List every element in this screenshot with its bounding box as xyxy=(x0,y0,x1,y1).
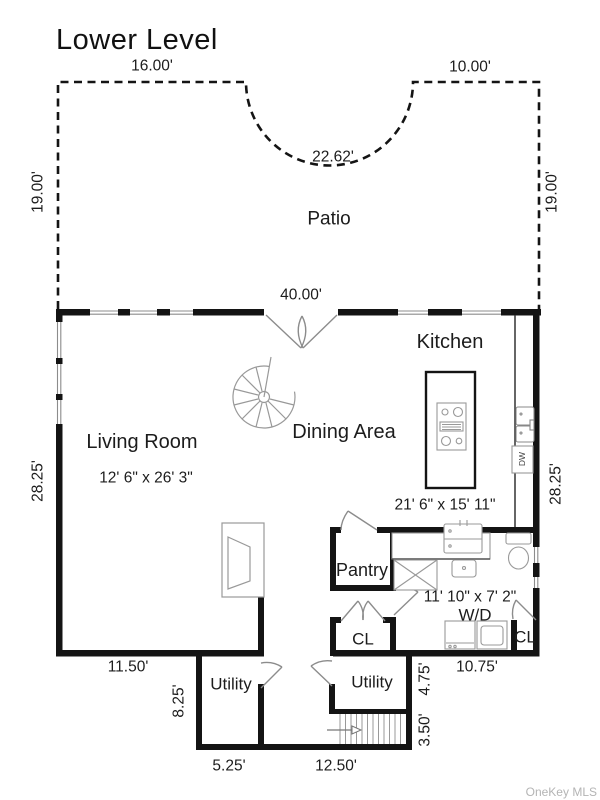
patio-door-left-leaf xyxy=(266,315,301,348)
living-room-size: 12' 6" x 26' 3" xyxy=(99,470,193,486)
small-sink xyxy=(452,560,476,577)
floor-plan-drawing xyxy=(0,0,600,800)
closet-left-door-a xyxy=(341,601,363,621)
dim-utility-center-height: 4.75' xyxy=(417,662,433,695)
staircase xyxy=(327,714,401,744)
laundry-sink xyxy=(444,520,482,553)
patio-door-right-leaf xyxy=(303,315,337,348)
room-label-pantry: Pantry xyxy=(336,561,388,579)
utility-left-door xyxy=(261,662,282,688)
spiral-staircase xyxy=(233,357,295,428)
bath-fixtures xyxy=(392,520,531,649)
room-label-closet-right: CL xyxy=(514,629,536,646)
dishwasher-label: DW xyxy=(518,452,527,466)
room-label-kitchen: Kitchen xyxy=(417,332,484,352)
dim-laundry-bottom-width: 10.75' xyxy=(456,659,498,675)
kitchen-sink xyxy=(516,407,534,442)
dim-main-height-right: 28.25' xyxy=(548,463,564,505)
room-label-utility-left: Utility xyxy=(210,676,252,693)
patio-outline xyxy=(58,82,539,309)
dryer xyxy=(477,621,507,649)
bath-door xyxy=(394,588,418,615)
dim-main-height-left: 28.25' xyxy=(30,460,46,502)
laundry-bath-size: 11' 10" x 7' 2" xyxy=(424,589,516,605)
pantry-door xyxy=(341,511,377,530)
range-stove xyxy=(437,403,466,450)
closet-left-door-b xyxy=(363,601,385,621)
room-label-closet-left: CL xyxy=(352,631,374,648)
floor-plan: Lower Level OneKey MLS Patio Kitchen Liv… xyxy=(0,0,600,800)
room-label-dining-area: Dining Area xyxy=(292,422,395,442)
watermark: OneKey MLS xyxy=(526,785,597,799)
dim-utility-left-width: 5.25' xyxy=(212,758,245,774)
room-label-utility-center: Utility xyxy=(351,674,393,691)
toilet xyxy=(506,533,531,569)
room-label-patio: Patio xyxy=(307,210,350,229)
dim-patio-side-right: 19.00' xyxy=(544,171,560,213)
shower xyxy=(394,560,437,590)
dim-stair-hall-width: 12.50' xyxy=(315,758,357,774)
page-title: Lower Level xyxy=(56,24,218,57)
dim-patio-top-left: 16.00' xyxy=(131,58,173,74)
washer-dryer-label: W/D xyxy=(458,607,491,624)
dim-patio-top-right: 10.00' xyxy=(449,59,491,75)
utility-center-door xyxy=(311,661,332,686)
dim-living-bottom-width: 11.50' xyxy=(108,659,149,675)
dim-utility-left-height: 8.25' xyxy=(171,684,187,717)
kitchen-counter xyxy=(512,315,534,527)
dim-patio-side-left: 19.00' xyxy=(30,171,46,213)
dim-stairs-height: 3.50' xyxy=(417,713,433,746)
windows-left-wall xyxy=(56,322,63,424)
kitchen-island xyxy=(426,372,475,488)
washer xyxy=(445,621,475,649)
bathtub-fixture xyxy=(222,523,264,597)
dim-patio-arc: 22.62' xyxy=(312,149,354,165)
patio-door-opening xyxy=(264,308,338,317)
kitchen-size: 21' 6" x 15' 11" xyxy=(394,497,495,513)
dim-main-width-top: 40.00' xyxy=(280,287,322,303)
room-label-living-room: Living Room xyxy=(86,432,197,452)
